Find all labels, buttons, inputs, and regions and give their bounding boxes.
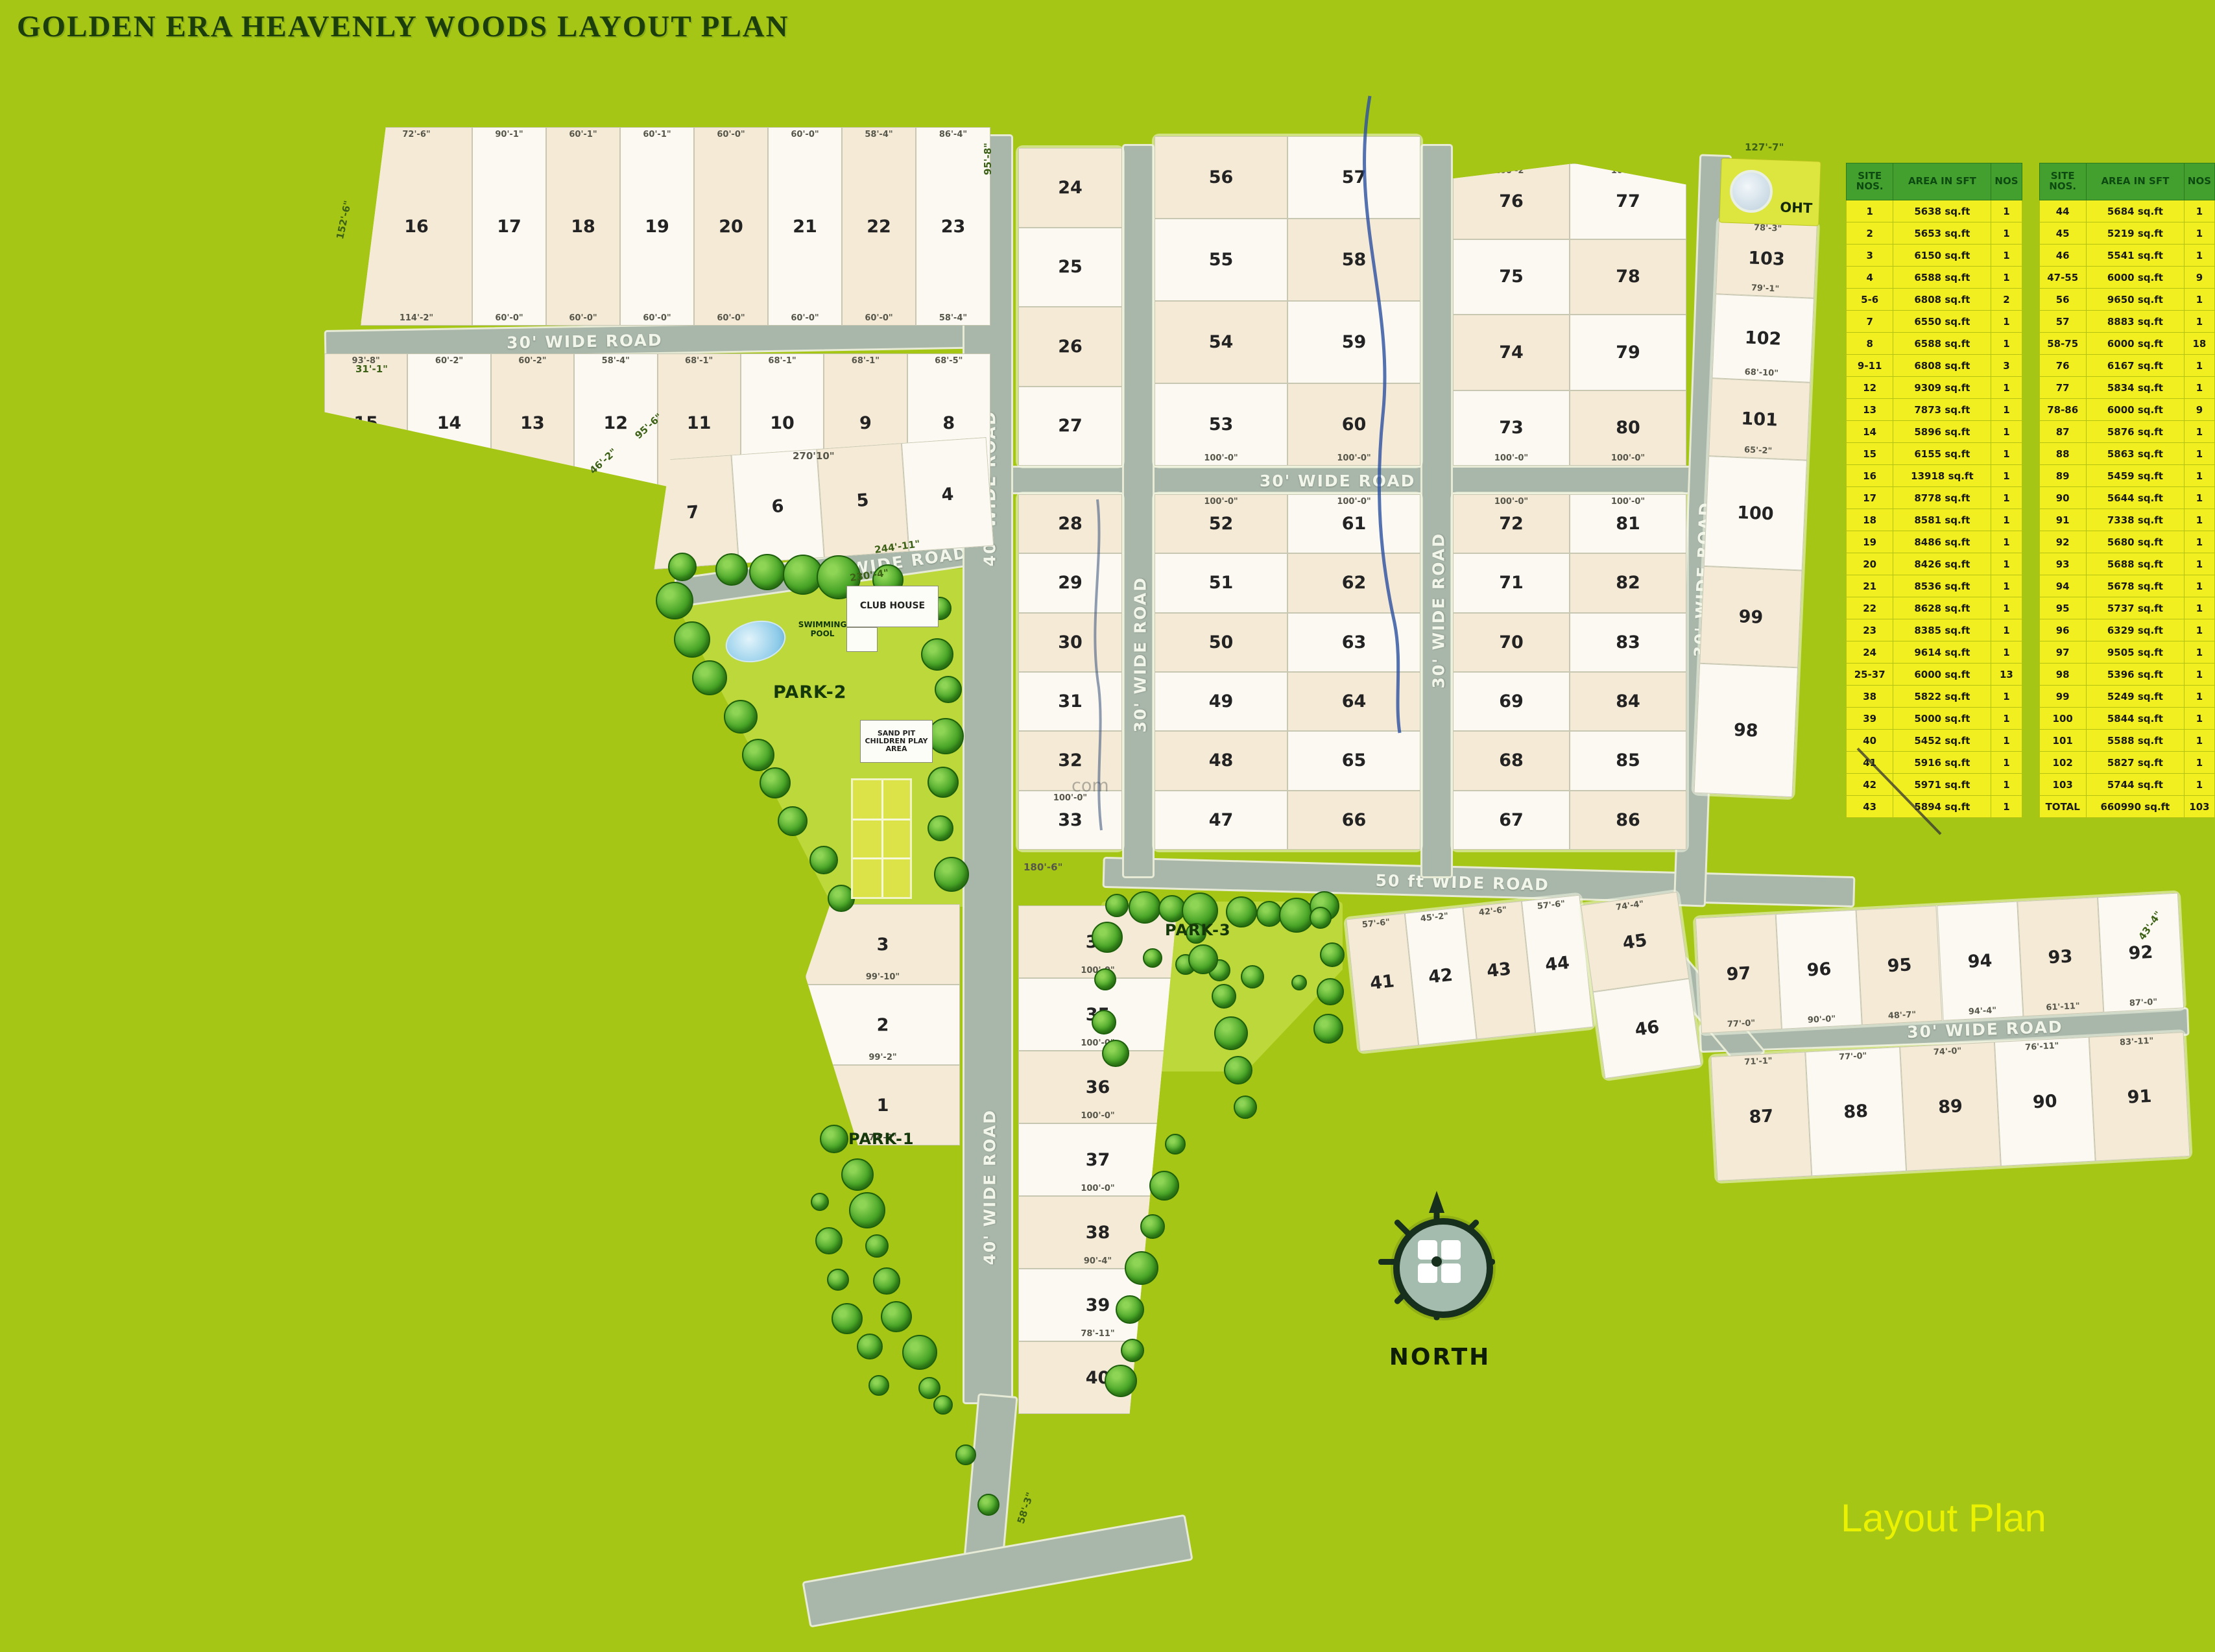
plot-number: 47 [1209,810,1234,830]
count: 1 [1991,509,2022,531]
tree-icon [1092,922,1123,953]
legend-row: 25653 sq.ft1 [1847,222,2022,245]
count: 1 [1991,443,2022,465]
plot: 49 [1155,672,1287,731]
area-sft: 5680 sq.ft [2086,531,2184,553]
legend-row: 925680 sq.ft1 [2039,531,2215,553]
count: 1 [2184,465,2214,487]
site-no: 22 [1847,597,1893,619]
plot-number: 99 [1738,606,1764,628]
area-sft: 6588 sq.ft [1893,333,1991,355]
plot: 399'-10" [806,904,960,985]
legend-row: 25-376000 sq.ft13 [1847,664,2022,686]
plot-number: 63 [1342,632,1367,652]
swimming-pool-label: SWIMMING POOL [786,620,859,638]
plot: 8771'-1" [1710,1052,1812,1181]
plot-dim: 100'-0" [1081,1111,1114,1121]
plot-number: 81 [1616,514,1640,534]
plot-number: 70 [1499,632,1524,652]
plot: 56 [1155,136,1287,219]
site-no: 92 [2039,531,2086,553]
legend-row: 955737 sq.ft1 [2039,597,2215,619]
plot-number: 85 [1616,750,1640,771]
site-no: 89 [2039,465,2086,487]
count: 1 [2184,200,2214,222]
tree-icon [668,553,697,581]
legend-row: 395000 sq.ft1 [1847,708,2022,730]
tree-icon [868,1375,889,1396]
plot-number: 10 [770,413,795,433]
plot-number: 68 [1499,750,1524,771]
count: 1 [1991,774,2022,796]
count: 1 [2184,641,2214,664]
site-no: 57 [2039,311,2086,333]
legend-row: 966329 sq.ft1 [2039,619,2215,641]
area-sft: 6000 sq.ft [1893,664,1991,686]
plot-dim: 100'-0" [1081,1184,1114,1193]
legend-row: 129309 sq.ft1 [1847,377,2022,399]
tree-icon [928,815,953,841]
count: 1 [2184,311,2214,333]
plot-number: 87 [1749,1106,1774,1127]
plot-dim: 76'-11" [2025,1041,2059,1053]
count: 1 [2184,487,2214,509]
plot: 27 [1018,387,1122,466]
plot-number: 103 [1748,248,1786,269]
count: 13 [1991,664,2022,686]
area-sft: 9650 sq.ft [2086,289,2184,311]
plot-number: 21 [793,217,817,237]
plot-dim: 57'-6" [1361,917,1391,929]
site-no: 90 [2039,487,2086,509]
area-sft: 6000 sq.ft [2086,333,2184,355]
count: 1 [1991,575,2022,597]
area-sft: 6329 sq.ft [2086,619,2184,641]
area-sft: 5744 sq.ft [2086,774,2184,796]
plot-number: 13 [520,413,545,433]
plot: 100 [1704,456,1807,570]
legend-row: 86588 sq.ft1 [1847,333,2022,355]
plot-number: 18 [571,217,595,237]
area-sft: 6000 sq.ft [2086,399,2184,421]
area-sft: 5249 sq.ft [2086,686,2184,708]
tree-icon [1116,1295,1144,1324]
column-dim: 100'-0" [1337,497,1371,507]
plot: 31 [1018,672,1122,731]
plot-number: 19 [645,217,669,237]
count: 1 [2184,619,2214,641]
plot: 99 [1699,566,1802,667]
area-sft: 5822 sq.ft [1893,686,1991,708]
tree-icon [1241,965,1264,988]
plot-number: 60 [1342,414,1367,435]
plot-number: 50 [1209,632,1234,652]
plot-block-block41_44: 4157'-6"4245'-2"4342'-6"4457'-6" [1346,895,1593,1052]
plot: 59 [1287,301,1420,383]
tree-icon [1105,1365,1137,1397]
plot: 68 [1453,731,1570,790]
site-no: 39 [1847,708,1893,730]
plot: 6 [732,449,824,564]
plot: 2160'-0"60'-0" [768,127,842,326]
count: 1 [1991,553,2022,575]
road-label: 30' WIDE ROAD [1131,577,1150,732]
plot: 2060'-0"60'-0" [694,127,768,326]
tree-icon [1310,907,1332,929]
plot: 9494'-4" [1937,902,2023,1021]
tree-icon [815,1227,843,1254]
legend-row: 156155 sq.ft1 [1847,443,2022,465]
plot: 54 [1155,301,1287,383]
plot-number: 36 [1086,1077,1110,1097]
tree-icon [820,1125,848,1153]
area-sft: 5219 sq.ft [2086,222,2184,245]
tree-icon [902,1335,937,1370]
plot-number: 52 [1209,514,1234,534]
plot-dim: 60'-0" [791,130,819,139]
area-sft: 5688 sq.ft [2086,553,2184,575]
plot-number: 78 [1616,267,1640,287]
plot-number: 59 [1342,332,1367,352]
count: 1 [1991,597,2022,619]
plot-dim: 74'-4" [1615,899,1644,913]
plot-number: 30 [1058,632,1083,652]
plot-number: 5 [856,490,870,510]
plot-number: 61 [1342,514,1367,534]
count: 1 [2184,774,2214,796]
plot-dim: 60'-0" [791,313,819,323]
plot-number: 32 [1058,750,1083,771]
area-sft: 5678 sq.ft [2086,575,2184,597]
legend-table: SITE NOS.AREA IN SFTNOS15638 sq.ft125653… [1846,163,2022,818]
plot-number: 49 [1209,691,1234,712]
park-1-label: PARK-1 [848,1130,915,1148]
tree-icon [1165,1134,1186,1155]
legend-row: 188581 sq.ft1 [1847,509,2022,531]
area-sft: 6000 sq.ft [2086,267,2184,289]
site-no: 19 [1847,531,1893,553]
legend-header: NOS [1991,163,2022,200]
site-no: 24 [1847,641,1893,664]
plot: 26 [1018,307,1122,387]
overhead-tank: OHT [1719,158,1821,226]
tree-icon [1317,978,1344,1005]
plot: 10268'-10" [1712,294,1814,383]
legend-row: 578883 sq.ft1 [2039,311,2215,333]
count: 1 [2184,664,2214,686]
plot-number: 82 [1616,573,1640,593]
plot-number: 23 [941,217,966,237]
plot-number: 91 [2127,1086,2152,1107]
area-sft: 8581 sq.ft [1893,509,1991,531]
tree-icon [809,846,838,874]
plot: 1860'-1"60'-0" [546,127,620,326]
site-no: 102 [2039,752,2086,774]
tree-icon [881,1301,912,1332]
area-sft: 5644 sq.ft [2086,487,2184,509]
column-dim: 100'-0" [1611,497,1645,507]
area-sft: 9505 sq.ft [2086,641,2184,664]
area-sft: 5396 sq.ft [2086,664,2184,686]
tree-icon [928,767,959,798]
legend-header: AREA IN SFT [1893,163,1991,200]
count: 1 [1991,267,2022,289]
site-no: 12 [1847,377,1893,399]
plot: 40 [1018,1341,1177,1414]
plot: 83 [1570,613,1686,672]
tree-icon [832,1303,863,1334]
plot-number: 73 [1499,418,1524,438]
area-sft: 9309 sq.ft [1893,377,1991,399]
plot-number: 42 [1428,965,1454,988]
legend-row: 76550 sq.ft1 [1847,311,2022,333]
legend-row: 198486 sq.ft1 [1847,531,2022,553]
legend-row: 228628 sq.ft1 [1847,597,2022,619]
site-no: 93 [2039,553,2086,575]
area-sft: 5844 sq.ft [2086,708,2184,730]
count: 18 [2184,333,2214,355]
count: 1 [1991,708,2022,730]
tree-icon [921,638,953,671]
watermark: com [1072,776,1109,796]
plot-dim: 68'-1" [685,356,713,366]
legend-row: 1613918 sq.ft1 [1847,465,2022,487]
site-no: 4 [1847,267,1893,289]
plot-number: 43 [1486,959,1513,981]
plot-number: 84 [1616,691,1640,712]
legend-table: SITE NOS.AREA IN SFTNOS445684 sq.ft14552… [2039,163,2215,818]
plot-block-blockC_bottom: 727170696867818283848586100'-0"100'-0" [1453,494,1686,850]
area-sft: 5896 sq.ft [1893,421,1991,443]
column-dim: 100'-0" [1204,497,1238,507]
tree-icon [977,1494,1000,1516]
plot-dim: 60'-0" [643,313,671,323]
site-no: 46 [2039,245,2086,267]
plot: 1460'-2" [407,353,490,493]
plot-number: 6 [771,496,785,516]
plot-number: 74 [1499,342,1524,363]
plot-number: 16 [404,217,429,237]
tree-icon [865,1234,889,1258]
plot: 9361'-11" [2017,897,2103,1016]
area-sft: 8486 sq.ft [1893,531,1991,553]
plot-dim: 68'-1" [852,356,880,366]
tree-icon [873,1267,900,1295]
site-no: 91 [2039,509,2086,531]
tree-icon [827,1269,849,1291]
plot: 50 [1155,613,1287,672]
count: 1 [1991,752,2022,774]
tree-icon [1143,948,1162,968]
plot-block-block45_46: 4574'-4"46 [1581,892,1701,1079]
area-sft: 6150 sq.ft [1893,245,1991,267]
plot-dim: 99'-2" [868,1053,896,1062]
count: 1 [2184,531,2214,553]
plot-number: 56 [1209,167,1234,187]
site-no: 101 [2039,730,2086,752]
legend-row: 985396 sq.ft1 [2039,664,2215,686]
area-sft: 8778 sq.ft [1893,487,1991,509]
legend-header: NOS [2184,163,2214,200]
site-no: 9-11 [1847,355,1893,377]
site-area-legend: SITE NOS.AREA IN SFTNOS15638 sq.ft125653… [1846,163,2215,818]
legend-row: 238385 sq.ft1 [1847,619,2022,641]
site-no: 103 [2039,774,2086,796]
tree-icon [1102,1040,1129,1067]
plot-number: 7 [686,502,700,523]
tree-icon [841,1158,874,1191]
plot-dim: 60'-0" [495,313,523,323]
site-no: 58-75 [2039,333,2086,355]
plot-dim: 78'-11" [1081,1329,1114,1339]
area-sft: 5459 sq.ft [2086,465,2184,487]
plot-number: 62 [1342,573,1367,593]
legend-row: 775834 sq.ft1 [2039,377,2215,399]
plot-dim: 68'-5" [935,356,963,366]
area-sft: 5876 sq.ft [2086,421,2184,443]
plot-number: 76 [1499,191,1524,211]
column-dim: 100'-2" [1494,166,1528,176]
plot-dim: 90'-1" [495,130,523,139]
site-no: 44 [2039,200,2086,222]
plot: 4 [902,437,994,552]
plot-dim: 74'-0" [1934,1046,1962,1057]
tree-icon [742,739,774,771]
count: 2 [1991,289,2022,311]
area-sft: 8385 sq.ft [1893,619,1991,641]
legend-row: 137873 sq.ft1 [1847,399,2022,421]
tree-icon [849,1192,885,1228]
plot-number: 46 [1634,1017,1661,1040]
road-label: 50 ft WIDE ROAD [1375,871,1550,894]
legend-row: 465541 sq.ft1 [2039,245,2215,267]
plot-block-blockC_top: 7675747377787980100'-2"100'-1"100'-0"100… [1453,163,1686,466]
site-no: 78-86 [2039,399,2086,421]
site-no: 17 [1847,487,1893,509]
park-3-label: PARK-3 [1165,921,1231,939]
plot-number: 89 [1937,1096,1963,1118]
plot: 1672'-6"114'-2" [361,127,472,326]
legend-row: 885863 sq.ft1 [2039,443,2215,465]
legend-row: 905644 sq.ft1 [2039,487,2215,509]
plot-dim: 61'-11" [2046,1001,2080,1013]
plot-dim: 58'-4" [602,356,630,366]
area-sft: 7338 sq.ft [2086,509,2184,531]
site-no: 88 [2039,443,2086,465]
plot: 24 [1018,148,1122,228]
plot-number: 45 [1622,930,1649,953]
area-sft: 8536 sq.ft [1893,575,1991,597]
plot-dim: 77'-0" [1839,1051,1867,1062]
page-title: GOLDEN ERA HEAVENLY WOODS LAYOUT PLAN [17,9,789,44]
plot: 33100'-0" [1018,791,1122,850]
tree-icon [934,857,969,892]
plot-block-colA_bottom: 282930313233100'-0" [1018,494,1122,850]
site-no: 41 [1847,752,1893,774]
plot-dim: 114'-2" [400,313,433,323]
plot-dim: 90'-4" [1084,1256,1112,1266]
north-label: NORTH [1359,1344,1521,1371]
plot-number: 4 [940,484,954,505]
site-no: 43 [1847,796,1893,818]
plot-number: 3 [877,935,889,955]
tree-icon [1149,1171,1179,1201]
oht-label: OHT [1780,200,1813,217]
plot-number: 97 [1726,963,1751,985]
area-sft: 5737 sq.ft [2086,597,2184,619]
plot: 8877'-0" [1805,1047,1906,1176]
legend-row: 415916 sq.ft1 [1847,752,2022,774]
plot: 79 [1570,315,1686,390]
legend-row: 208426 sq.ft1 [1847,553,2022,575]
legend-row: 9-116808 sq.ft3 [1847,355,2022,377]
count: 1 [2184,730,2214,752]
site-no: 98 [2039,664,2086,686]
plot: 58 [1287,219,1420,301]
tree-icon [928,718,964,754]
legend-row: 995249 sq.ft1 [2039,686,2215,708]
site-no: 8 [1847,333,1893,355]
plot-number: 9 [859,413,872,433]
plot-number: 48 [1209,750,1234,771]
site-no: 25-37 [1847,664,1893,686]
north-pointer-icon [1429,1191,1444,1213]
count: 1 [2184,708,2214,730]
site-no: 13 [1847,399,1893,421]
legend-row: 58-756000 sq.ft18 [2039,333,2215,355]
plot-number: 15 [353,413,378,433]
legend-header: SITE NOS. [2039,163,2086,200]
plot-number: 25 [1058,257,1083,277]
tree-icon [778,806,808,836]
plot: 9183'-11" [2089,1032,2190,1161]
plot-dim: 58'-4" [865,130,892,139]
compass-icon [1375,1200,1505,1330]
plot: 25 [1018,228,1122,307]
legend-row: 435894 sq.ft1 [1847,796,2022,818]
count: 1 [1991,222,2022,245]
plot-number: 96 [1806,959,1832,980]
site-no: 1 [1847,200,1893,222]
plot-number: 80 [1616,418,1640,438]
plot-dim: 71'-1" [1744,1056,1773,1067]
site-no: 97 [2039,641,2086,664]
plot-dim: 180'-6" [1024,861,1062,873]
plot: 10378'-3"79'-1" [1716,219,1817,298]
road: 30' WIDE ROAD [1009,466,1719,494]
plot-number: 71 [1499,573,1524,593]
count: 1 [2184,553,2214,575]
plot-dim: 45'-2" [1420,911,1449,924]
plot: 1960'-1"60'-0" [620,127,694,326]
legend-row: 917338 sq.ft1 [2039,509,2215,531]
area-sft: 6167 sq.ft [2086,355,2184,377]
area-sft: 660990 sq.ft [2086,796,2184,818]
area-sft: 5653 sq.ft [1893,222,1991,245]
plot: 30 [1018,613,1122,672]
plot-number: 88 [1843,1101,1869,1122]
plot: 82 [1570,553,1686,612]
count: 1 [1991,377,2022,399]
column-dim: 100'-0" [1611,453,1645,463]
play-court [851,778,912,899]
legend-row: 945678 sq.ft1 [2039,575,2215,597]
count: 1 [1991,619,2022,641]
site-no: 76 [2039,355,2086,377]
plot: 47 [1155,791,1287,850]
tree-icon [1320,942,1345,967]
site-no: 20 [1847,553,1893,575]
